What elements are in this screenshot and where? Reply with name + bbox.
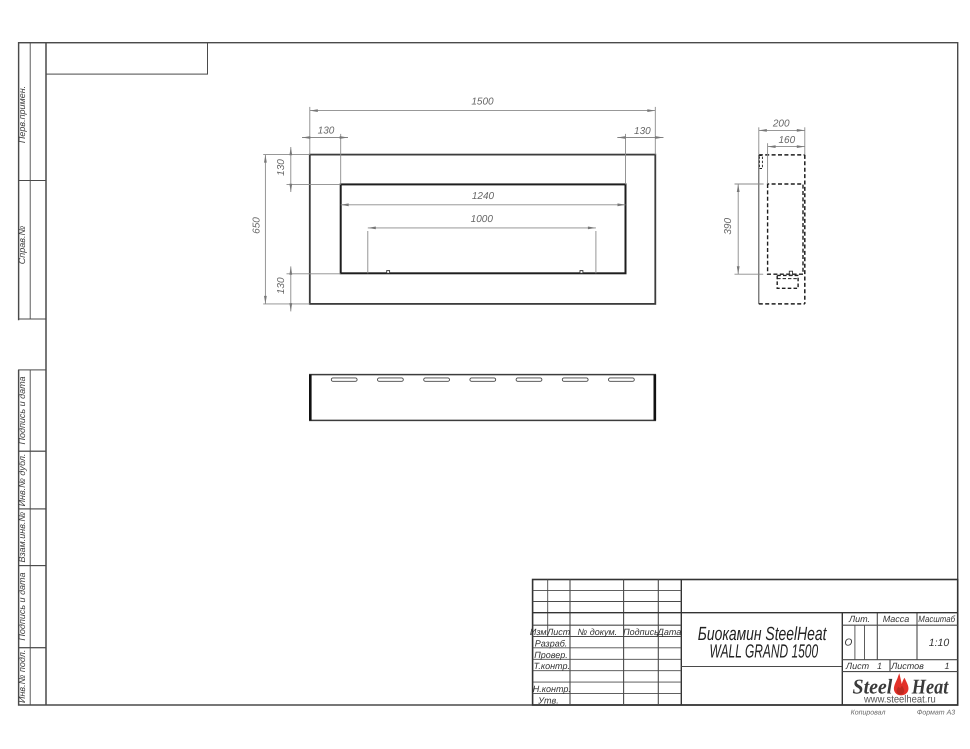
svg-text:Справ.№: Справ.№ bbox=[17, 226, 27, 265]
svg-text:www.steelheat.ru: www.steelheat.ru bbox=[863, 694, 936, 706]
svg-text:Лист: Лист bbox=[845, 661, 870, 671]
svg-text:1000: 1000 bbox=[471, 214, 494, 225]
svg-text:130: 130 bbox=[276, 159, 287, 176]
svg-text:Взам.инв.№: Взам.инв.№ bbox=[17, 512, 27, 563]
svg-text:Дата: Дата bbox=[657, 627, 682, 637]
svg-text:WALL GRAND 1500: WALL GRAND 1500 bbox=[710, 641, 819, 662]
svg-text:200: 200 bbox=[772, 119, 790, 130]
svg-text:Лист: Лист bbox=[546, 627, 571, 637]
svg-text:Лит.: Лит. bbox=[848, 614, 870, 624]
svg-text:Копировал: Копировал bbox=[851, 710, 886, 717]
svg-text:130: 130 bbox=[318, 126, 335, 137]
svg-text:О: О bbox=[845, 638, 853, 649]
svg-text:Масштаб: Масштаб bbox=[918, 614, 956, 624]
svg-text:1500: 1500 bbox=[471, 97, 494, 108]
svg-text:Формат А3: Формат А3 bbox=[917, 710, 955, 717]
svg-text:Масса: Масса bbox=[883, 614, 910, 624]
svg-text:1240: 1240 bbox=[472, 191, 495, 202]
svg-text:Листов: Листов bbox=[890, 661, 924, 671]
svg-text:Н.контр.: Н.контр. bbox=[533, 684, 571, 694]
svg-text:130: 130 bbox=[634, 126, 651, 137]
svg-text:Подпись и дата: Подпись и дата bbox=[17, 376, 27, 444]
svg-text:Провер.: Провер. bbox=[534, 650, 568, 660]
svg-text:Подпись и дата: Подпись и дата bbox=[17, 573, 27, 641]
svg-text:Т.контр.: Т.контр. bbox=[534, 661, 570, 671]
svg-text:390: 390 bbox=[723, 218, 734, 235]
svg-text:№ докум.: № докум. bbox=[577, 627, 617, 637]
svg-text:Инв.№ дубл.: Инв.№ дубл. bbox=[17, 454, 27, 507]
svg-text:Инв.№ подл.: Инв.№ подл. bbox=[17, 650, 27, 703]
svg-text:1:10: 1:10 bbox=[929, 637, 950, 649]
svg-text:Перв.примен.: Перв.примен. bbox=[17, 86, 27, 143]
svg-text:Разраб.: Разраб. bbox=[535, 638, 568, 648]
svg-text:Утв.: Утв. bbox=[537, 695, 558, 705]
svg-text:1: 1 bbox=[944, 661, 949, 671]
svg-text:Подпись: Подпись bbox=[623, 627, 659, 637]
svg-text:160: 160 bbox=[778, 135, 795, 146]
svg-text:130: 130 bbox=[276, 277, 287, 294]
svg-text:1: 1 bbox=[877, 661, 882, 671]
svg-text:650: 650 bbox=[252, 217, 263, 234]
